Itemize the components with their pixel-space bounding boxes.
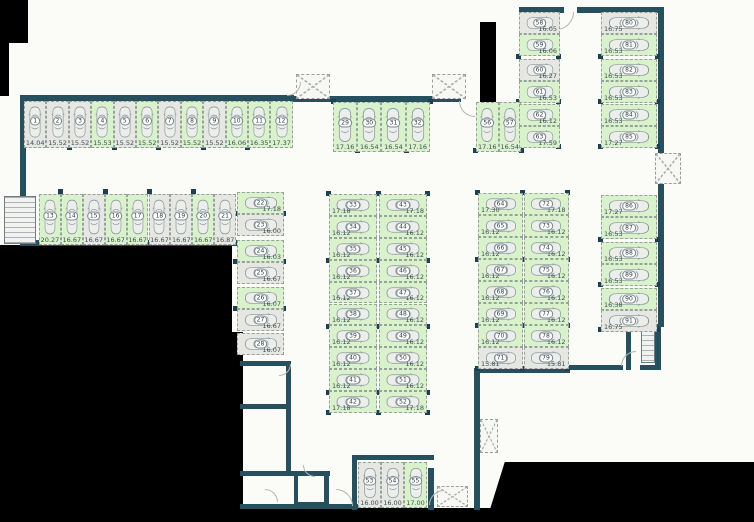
parking-stall-80[interactable]: 8016.75 bbox=[601, 12, 657, 34]
stall-number-badge: 74 bbox=[539, 243, 553, 252]
parking-stall-27[interactable]: 2716.67 bbox=[237, 309, 284, 331]
stall-number-badge: 38 bbox=[346, 310, 360, 319]
stall-number-badge: 65 bbox=[494, 221, 508, 230]
door-swing-icon bbox=[265, 489, 278, 502]
wall-segment bbox=[640, 365, 660, 370]
parking-stall-81[interactable]: 8116.53 bbox=[601, 34, 657, 56]
stall-number-badge: 90 bbox=[622, 295, 636, 304]
stairs-icon bbox=[641, 329, 655, 363]
stall-size-label: 16.00 bbox=[359, 500, 380, 507]
parking-stall-39[interactable]: 3916.12 bbox=[329, 325, 377, 347]
stall-size-label: 15.52 bbox=[182, 140, 202, 147]
stall-number-badge: 24 bbox=[254, 247, 268, 256]
stall-number-badge: 47 bbox=[396, 288, 410, 297]
stall-number-badge: 30 bbox=[362, 119, 376, 128]
stall-size-label: 16.54 bbox=[358, 144, 380, 151]
parking-stall-19[interactable]: 1916.67 bbox=[170, 194, 192, 245]
stall-size-label: 16.53 bbox=[604, 231, 623, 238]
door-swing-icon bbox=[621, 351, 636, 366]
stall-size-label: 16.75 bbox=[604, 26, 623, 33]
void-area-diagonal bbox=[486, 462, 754, 522]
stall-number-badge: 72 bbox=[539, 199, 553, 208]
parking-stall-47[interactable]: 4716.12 bbox=[379, 282, 427, 304]
stall-number-badge: 49 bbox=[396, 332, 410, 341]
stall-size-label: 16.67 bbox=[150, 237, 170, 244]
stall-size-label: 20.27 bbox=[40, 237, 60, 244]
parking-stall-63[interactable]: 6317.59 bbox=[519, 126, 560, 148]
stall-size-label: 16.06 bbox=[227, 140, 247, 147]
parking-stall-26[interactable]: 2616.07 bbox=[237, 287, 284, 309]
wall-segment bbox=[352, 455, 357, 510]
parking-stall-28[interactable]: 2816.07 bbox=[237, 333, 284, 355]
stall-number-badge: 29 bbox=[338, 119, 352, 128]
stall-size-label: 16.53 bbox=[604, 48, 623, 55]
parking-stall-67[interactable]: 6716.12 bbox=[478, 259, 523, 281]
stall-size-label: 15.52 bbox=[115, 140, 135, 147]
stall-size-label: 16.53 bbox=[604, 256, 623, 263]
stall-size-label: 16.12 bbox=[405, 252, 424, 259]
stall-number-badge: 3 bbox=[75, 116, 85, 125]
parking-stall-62[interactable]: 6216.12 bbox=[519, 104, 560, 126]
wall-segment bbox=[658, 7, 664, 156]
stall-size-label: 16.12 bbox=[405, 317, 424, 324]
stall-number-badge: 18 bbox=[153, 211, 167, 220]
stall-size-label: 16.67 bbox=[262, 323, 281, 330]
parking-stall-59[interactable]: 5916.06 bbox=[519, 34, 560, 56]
parking-stall-40[interactable]: 4016.12 bbox=[329, 347, 377, 369]
parking-stall-71[interactable]: 7115.81 bbox=[478, 347, 523, 369]
stall-number-badge: 68 bbox=[494, 287, 508, 296]
stall-size-label: 16.12 bbox=[405, 361, 424, 368]
stall-size-label: 15.52 bbox=[204, 140, 224, 147]
stall-number-badge: 10 bbox=[230, 116, 244, 125]
ventilation-shaft-icon bbox=[296, 74, 330, 99]
stall-size-label: 16.67 bbox=[262, 276, 281, 283]
parking-stall-23[interactable]: 2316.00 bbox=[237, 214, 284, 236]
stall-number-badge: 40 bbox=[346, 354, 360, 363]
parking-stall-12[interactable]: 1217.37 bbox=[270, 101, 292, 148]
stall-number-badge: 45 bbox=[396, 244, 410, 253]
stall-number-badge: 79 bbox=[539, 353, 553, 362]
stall-number-badge: 51 bbox=[396, 376, 410, 385]
stall-size-label: 17.00 bbox=[405, 500, 426, 507]
stall-number-badge: 23 bbox=[254, 221, 268, 230]
parking-stall-1[interactable]: 114.04 bbox=[24, 101, 46, 148]
stall-number-badge: 85 bbox=[622, 133, 636, 142]
stall-size-label: 17.16 bbox=[477, 144, 498, 151]
stall-size-label: 16.53 bbox=[604, 118, 623, 125]
parking-stall-8[interactable]: 815.52 bbox=[181, 101, 203, 148]
stall-size-label: 17.16 bbox=[334, 144, 356, 151]
parking-stall-65[interactable]: 6516.12 bbox=[478, 215, 523, 237]
stall-number-badge: 16 bbox=[109, 211, 123, 220]
stall-size-label: 17.27 bbox=[604, 140, 623, 147]
stall-number-badge: 35 bbox=[346, 244, 360, 253]
parking-stall-42[interactable]: 4217.18 bbox=[329, 391, 377, 413]
stall-number-badge: 22 bbox=[254, 199, 268, 208]
stall-size-label: 16.07 bbox=[262, 301, 281, 308]
stall-number-badge: 9 bbox=[209, 116, 219, 125]
stall-number-badge: 55 bbox=[409, 477, 423, 486]
stall-number-badge: 19 bbox=[175, 211, 189, 220]
stall-size-label: 16.67 bbox=[84, 237, 104, 244]
parking-stall-13[interactable]: 1320.27 bbox=[39, 194, 61, 245]
parking-floor-plan: 114.04215.52315.52415.53515.52615.52715.… bbox=[0, 0, 754, 522]
stall-size-label: 16.67 bbox=[62, 237, 82, 244]
parking-stall-84[interactable]: 8416.53 bbox=[601, 104, 657, 126]
stall-number-badge: 15 bbox=[87, 211, 101, 220]
stall-number-badge: 6 bbox=[142, 116, 152, 125]
parking-stall-18[interactable]: 1816.67 bbox=[149, 194, 171, 245]
parking-stall-89[interactable]: 8916.53 bbox=[601, 264, 657, 286]
stall-number-badge: 12 bbox=[275, 116, 289, 125]
parking-stall-43[interactable]: 4317.18 bbox=[379, 194, 427, 216]
stall-number-badge: 91 bbox=[622, 317, 636, 326]
parking-stall-85[interactable]: 8517.27 bbox=[601, 126, 657, 148]
parking-stall-45[interactable]: 4516.12 bbox=[379, 238, 427, 260]
parking-stall-33[interactable]: 3317.18 bbox=[329, 194, 377, 216]
stall-number-badge: 69 bbox=[494, 309, 508, 318]
stall-number-badge: 52 bbox=[396, 398, 410, 407]
stall-number-badge: 44 bbox=[396, 222, 410, 231]
parking-stall-69[interactable]: 6916.12 bbox=[478, 303, 523, 325]
parking-stall-75[interactable]: 7516.12 bbox=[524, 259, 569, 281]
stall-size-label: 15.53 bbox=[92, 140, 112, 147]
stall-number-badge: 4 bbox=[97, 116, 107, 125]
void-area bbox=[0, 332, 243, 510]
parking-stall-86[interactable]: 8617.27 bbox=[601, 195, 657, 217]
stall-size-label: 15.52 bbox=[70, 140, 90, 147]
parking-stall-78[interactable]: 7816.12 bbox=[524, 325, 569, 347]
stall-size-label: 16.12 bbox=[405, 295, 424, 302]
stall-number-badge: 7 bbox=[165, 116, 175, 125]
parking-stall-29[interactable]: 2917.16 bbox=[333, 102, 357, 152]
parking-stall-15[interactable]: 1516.67 bbox=[83, 194, 105, 245]
stall-size-label: 17.27 bbox=[604, 209, 623, 216]
stall-size-label: 14.04 bbox=[25, 140, 45, 147]
parking-stall-60[interactable]: 6016.27 bbox=[519, 59, 560, 81]
stall-number-badge: 43 bbox=[396, 200, 410, 209]
parking-stall-46[interactable]: 4616.12 bbox=[379, 260, 427, 282]
stall-size-label: 17.18 bbox=[405, 405, 424, 412]
parking-stall-25[interactable]: 2516.67 bbox=[237, 262, 284, 284]
stall-size-label: 17.16 bbox=[407, 144, 429, 151]
stall-number-badge: 53 bbox=[363, 477, 377, 486]
parking-stall-44[interactable]: 4416.12 bbox=[379, 216, 427, 238]
parking-stall-31[interactable]: 3116.54 bbox=[381, 102, 405, 152]
parking-stall-7[interactable]: 715.52 bbox=[158, 101, 180, 148]
stall-size-label: 16.53 bbox=[604, 73, 623, 80]
parking-stall-61[interactable]: 6116.53 bbox=[519, 81, 560, 103]
wall-segment bbox=[240, 404, 290, 409]
stall-number-badge: 1 bbox=[30, 116, 40, 125]
parking-stall-51[interactable]: 5116.12 bbox=[379, 369, 427, 391]
parking-stall-91[interactable]: 9116.75 bbox=[601, 310, 657, 332]
parking-stall-38[interactable]: 3816.12 bbox=[329, 304, 377, 326]
door-swing-icon bbox=[336, 489, 353, 506]
stall-number-badge: 84 bbox=[622, 111, 636, 120]
stall-number-badge: 21 bbox=[218, 211, 232, 220]
stairs-icon bbox=[4, 196, 36, 244]
parking-stall-16[interactable]: 1616.67 bbox=[105, 194, 127, 245]
parking-stall-53[interactable]: 5316.00 bbox=[358, 462, 381, 508]
stall-number-badge: 59 bbox=[533, 41, 547, 50]
stall-number-badge: 78 bbox=[539, 331, 553, 340]
stall-size-label: 16.07 bbox=[262, 347, 281, 354]
stall-number-badge: 2 bbox=[53, 116, 63, 125]
stall-number-badge: 20 bbox=[196, 211, 210, 220]
stall-number-badge: 26 bbox=[254, 294, 268, 303]
parking-stall-21[interactable]: 2116.87 bbox=[214, 194, 236, 245]
void-area bbox=[0, 245, 232, 333]
stall-number-badge: 11 bbox=[252, 116, 266, 125]
stall-number-badge: 83 bbox=[622, 88, 636, 97]
parking-stall-57[interactable]: 5716.54 bbox=[499, 102, 522, 152]
stall-size-label: 16.67 bbox=[128, 237, 148, 244]
parking-stall-5[interactable]: 515.52 bbox=[114, 101, 136, 148]
stall-number-badge: 89 bbox=[622, 271, 636, 280]
stall-number-badge: 77 bbox=[539, 309, 553, 318]
stall-size-label: 16.03 bbox=[262, 254, 281, 261]
stall-number-badge: 39 bbox=[346, 332, 360, 341]
stall-number-badge: 54 bbox=[386, 477, 400, 486]
parking-stall-66[interactable]: 6616.12 bbox=[478, 237, 523, 259]
parking-stall-20[interactable]: 2016.67 bbox=[192, 194, 214, 245]
parking-stall-17[interactable]: 1716.67 bbox=[127, 194, 149, 245]
stall-number-badge: 37 bbox=[346, 288, 360, 297]
parking-stall-79[interactable]: 7915.81 bbox=[524, 347, 569, 369]
stall-number-badge: 82 bbox=[622, 66, 636, 75]
wall-segment bbox=[352, 455, 434, 460]
stall-number-badge: 25 bbox=[254, 269, 268, 278]
stall-size-label: 15.52 bbox=[47, 140, 67, 147]
stall-size-label: 16.12 bbox=[405, 274, 424, 281]
parking-stall-83[interactable]: 8316.53 bbox=[601, 81, 657, 103]
parking-stall-6[interactable]: 615.52 bbox=[136, 101, 158, 148]
parking-stall-22[interactable]: 2217.18 bbox=[237, 192, 284, 214]
stall-size-label: 16.54 bbox=[382, 144, 404, 151]
stall-size-label: 17.37 bbox=[271, 140, 291, 147]
parking-stall-58[interactable]: 5816.05 bbox=[519, 12, 560, 34]
parking-stall-82[interactable]: 8216.53 bbox=[601, 59, 657, 81]
parking-stall-10[interactable]: 1016.06 bbox=[226, 101, 248, 148]
stall-size-label: 15.52 bbox=[159, 140, 179, 147]
stall-number-badge: 66 bbox=[494, 243, 508, 252]
stall-number-badge: 61 bbox=[533, 88, 547, 97]
stall-number-badge: 5 bbox=[120, 116, 130, 125]
stall-size-label: 16.12 bbox=[405, 230, 424, 237]
parking-stall-9[interactable]: 915.52 bbox=[203, 101, 225, 148]
parking-stall-48[interactable]: 4816.12 bbox=[379, 304, 427, 326]
stall-number-badge: 76 bbox=[539, 287, 553, 296]
stall-size-label: 16.67 bbox=[193, 237, 213, 244]
parking-stall-50[interactable]: 5016.12 bbox=[379, 347, 427, 369]
parking-stall-64[interactable]: 6417.30 bbox=[478, 193, 523, 215]
stall-size-label: 16.67 bbox=[171, 237, 191, 244]
stall-number-badge: 8 bbox=[187, 116, 197, 125]
door-swing-icon bbox=[459, 101, 475, 117]
ventilation-shaft-icon bbox=[655, 153, 681, 184]
stall-number-badge: 87 bbox=[622, 224, 636, 233]
stall-number-badge: 50 bbox=[396, 354, 410, 363]
stall-number-badge: 70 bbox=[494, 331, 508, 340]
stall-number-badge: 17 bbox=[131, 211, 145, 220]
stall-number-badge: 67 bbox=[494, 265, 508, 274]
stall-size-label: 17.18 bbox=[405, 208, 424, 215]
parking-stall-36[interactable]: 3616.12 bbox=[329, 260, 377, 282]
stall-size-label: 15.52 bbox=[137, 140, 157, 147]
stall-size-label: 16.00 bbox=[262, 228, 281, 235]
stall-number-badge: 88 bbox=[622, 249, 636, 258]
stall-number-badge: 42 bbox=[346, 398, 360, 407]
parking-stall-54[interactable]: 5416.00 bbox=[381, 462, 404, 508]
parking-stall-14[interactable]: 1416.67 bbox=[61, 194, 83, 245]
stall-size-label: 17.18 bbox=[262, 206, 281, 213]
parking-stall-32[interactable]: 3217.16 bbox=[406, 102, 430, 152]
parking-stall-4[interactable]: 415.53 bbox=[91, 101, 113, 148]
stall-size-label: 16.67 bbox=[106, 237, 126, 244]
parking-stall-76[interactable]: 7616.12 bbox=[524, 281, 569, 303]
stall-number-badge: 46 bbox=[396, 266, 410, 275]
stall-number-badge: 86 bbox=[622, 202, 636, 211]
stall-number-badge: 60 bbox=[533, 66, 547, 75]
stall-size-label: 16.87 bbox=[215, 237, 235, 244]
stall-number-badge: 56 bbox=[480, 119, 494, 128]
void-area bbox=[0, 43, 9, 96]
stall-number-badge: 13 bbox=[43, 211, 57, 220]
stall-number-badge: 48 bbox=[396, 310, 410, 319]
parking-stall-70[interactable]: 7016.12 bbox=[478, 325, 523, 347]
stall-number-badge: 63 bbox=[533, 133, 547, 142]
parking-stall-2[interactable]: 215.52 bbox=[46, 101, 68, 148]
stall-size-label: 16.75 bbox=[604, 324, 623, 331]
parking-stall-74[interactable]: 7416.12 bbox=[524, 237, 569, 259]
stall-number-badge: 80 bbox=[622, 19, 636, 28]
stall-number-badge: 31 bbox=[387, 119, 401, 128]
parking-stall-30[interactable]: 3016.54 bbox=[357, 102, 381, 152]
stall-number-badge: 34 bbox=[346, 222, 360, 231]
parking-stall-35[interactable]: 3516.12 bbox=[329, 238, 377, 260]
stall-number-badge: 36 bbox=[346, 266, 360, 275]
parking-stall-56[interactable]: 5617.16 bbox=[476, 102, 499, 152]
stall-number-badge: 81 bbox=[622, 41, 636, 50]
wall-segment bbox=[286, 404, 291, 476]
stall-size-label: 16.38 bbox=[604, 302, 623, 309]
parking-stall-11[interactable]: 1116.35 bbox=[248, 101, 270, 148]
wall-segment bbox=[240, 471, 330, 476]
stall-number-badge: 75 bbox=[539, 265, 553, 274]
void-area bbox=[0, 0, 28, 43]
stall-size-label: 16.12 bbox=[405, 339, 424, 346]
wall-segment bbox=[658, 184, 664, 327]
parking-stall-55[interactable]: 5517.00 bbox=[404, 462, 427, 508]
stall-number-badge: 41 bbox=[346, 376, 360, 385]
stall-size-label: 16.53 bbox=[604, 278, 623, 285]
ventilation-shaft-icon bbox=[432, 74, 466, 99]
parking-stall-3[interactable]: 315.52 bbox=[69, 101, 91, 148]
parking-stall-72[interactable]: 7217.18 bbox=[524, 193, 569, 215]
parking-stall-37[interactable]: 3716.12 bbox=[329, 282, 377, 304]
stall-number-badge: 27 bbox=[254, 316, 268, 325]
parking-stall-73[interactable]: 7316.12 bbox=[524, 215, 569, 237]
parking-stall-41[interactable]: 4116.12 bbox=[329, 369, 377, 391]
stall-number-badge: 62 bbox=[533, 111, 547, 120]
wall-segment bbox=[563, 365, 623, 370]
parking-stall-68[interactable]: 6816.12 bbox=[478, 281, 523, 303]
parking-stall-88[interactable]: 8816.53 bbox=[601, 242, 657, 264]
stall-size-label: 16.12 bbox=[405, 383, 424, 390]
stall-number-badge: 57 bbox=[503, 119, 517, 128]
void-area bbox=[480, 22, 496, 102]
stall-number-badge: 71 bbox=[494, 353, 508, 362]
stall-size-label: 16.54 bbox=[500, 144, 521, 151]
stall-number-badge: 32 bbox=[411, 119, 425, 128]
stall-number-badge: 33 bbox=[346, 200, 360, 209]
stall-size-label: 16.53 bbox=[604, 95, 623, 102]
stall-size-label: 16.35 bbox=[249, 140, 269, 147]
stall-number-badge: 58 bbox=[533, 19, 547, 28]
stall-size-label: 16.00 bbox=[382, 500, 403, 507]
stall-number-badge: 14 bbox=[65, 211, 79, 220]
parking-stall-87[interactable]: 8716.53 bbox=[601, 217, 657, 239]
parking-stall-34[interactable]: 3416.12 bbox=[329, 216, 377, 238]
parking-stall-77[interactable]: 7716.12 bbox=[524, 303, 569, 325]
stall-number-badge: 64 bbox=[494, 199, 508, 208]
ventilation-shaft-icon bbox=[480, 419, 498, 453]
stall-number-badge: 28 bbox=[254, 340, 268, 349]
stall-number-badge: 73 bbox=[539, 221, 553, 230]
parking-stall-24[interactable]: 2416.03 bbox=[237, 240, 284, 262]
parking-stall-52[interactable]: 5217.18 bbox=[379, 391, 427, 413]
parking-stall-49[interactable]: 4916.12 bbox=[379, 325, 427, 347]
parking-stall-90[interactable]: 9016.38 bbox=[601, 288, 657, 310]
